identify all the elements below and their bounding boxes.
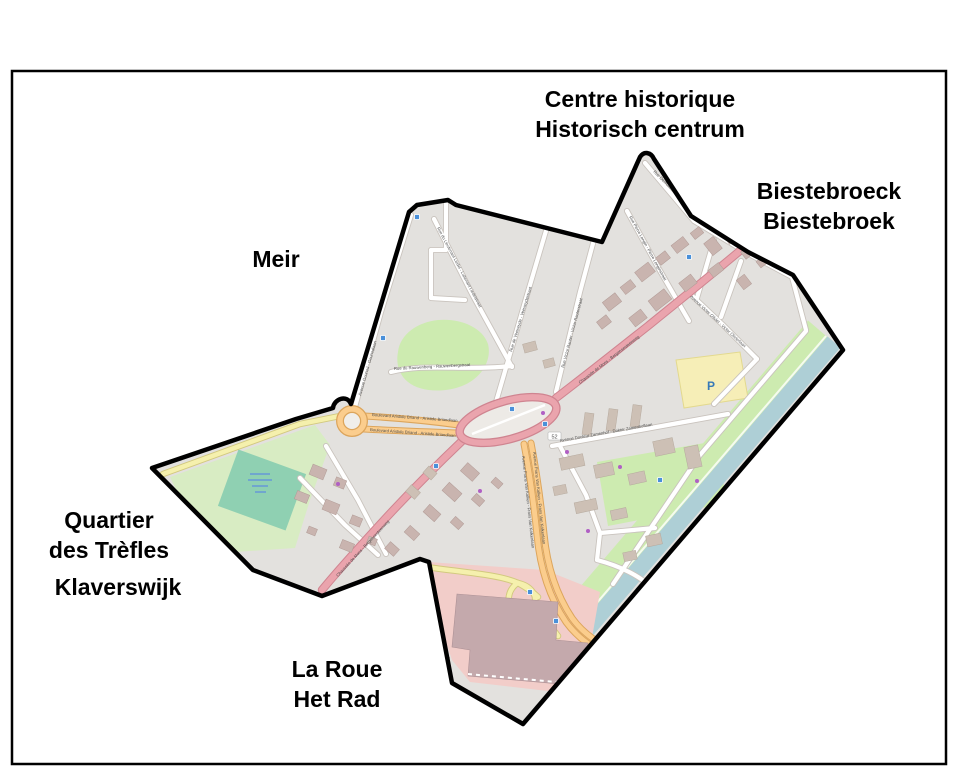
parking-icon: P	[707, 379, 715, 393]
label-la-roue: La Roue Het Rad	[292, 654, 383, 714]
label-quartier-des-trefles: Quartier des Trèfles	[49, 505, 169, 565]
label-centre-historique-nl: Historisch centrum	[535, 114, 745, 144]
label-meir-text: Meir	[252, 244, 299, 274]
label-trefles-fr-line2: des Trèfles	[49, 535, 169, 565]
map-figure: P 52 Boulevard Aristide Briand - Aristid…	[0, 0, 960, 774]
label-biestebroeck-nl: Biestebroek	[757, 206, 901, 236]
label-meir: Meir	[252, 244, 299, 274]
label-biestebroeck-fr: Biestebroeck	[757, 176, 901, 206]
label-centre-historique: Centre historique Historisch centrum	[535, 84, 745, 144]
label-trefles-fr-line1: Quartier	[49, 505, 169, 535]
label-la-roue-fr: La Roue	[292, 654, 383, 684]
label-klaverswijk-text: Klaverswijk	[55, 572, 182, 602]
label-klaverswijk: Klaverswijk	[55, 572, 182, 602]
label-la-roue-nl: Het Rad	[292, 684, 383, 714]
map-svg: P 52 Boulevard Aristide Briand - Aristid…	[0, 0, 960, 774]
label-centre-historique-fr: Centre historique	[535, 84, 745, 114]
label-biestebroeck: Biestebroeck Biestebroek	[757, 176, 901, 236]
svg-text:52: 52	[551, 435, 557, 441]
